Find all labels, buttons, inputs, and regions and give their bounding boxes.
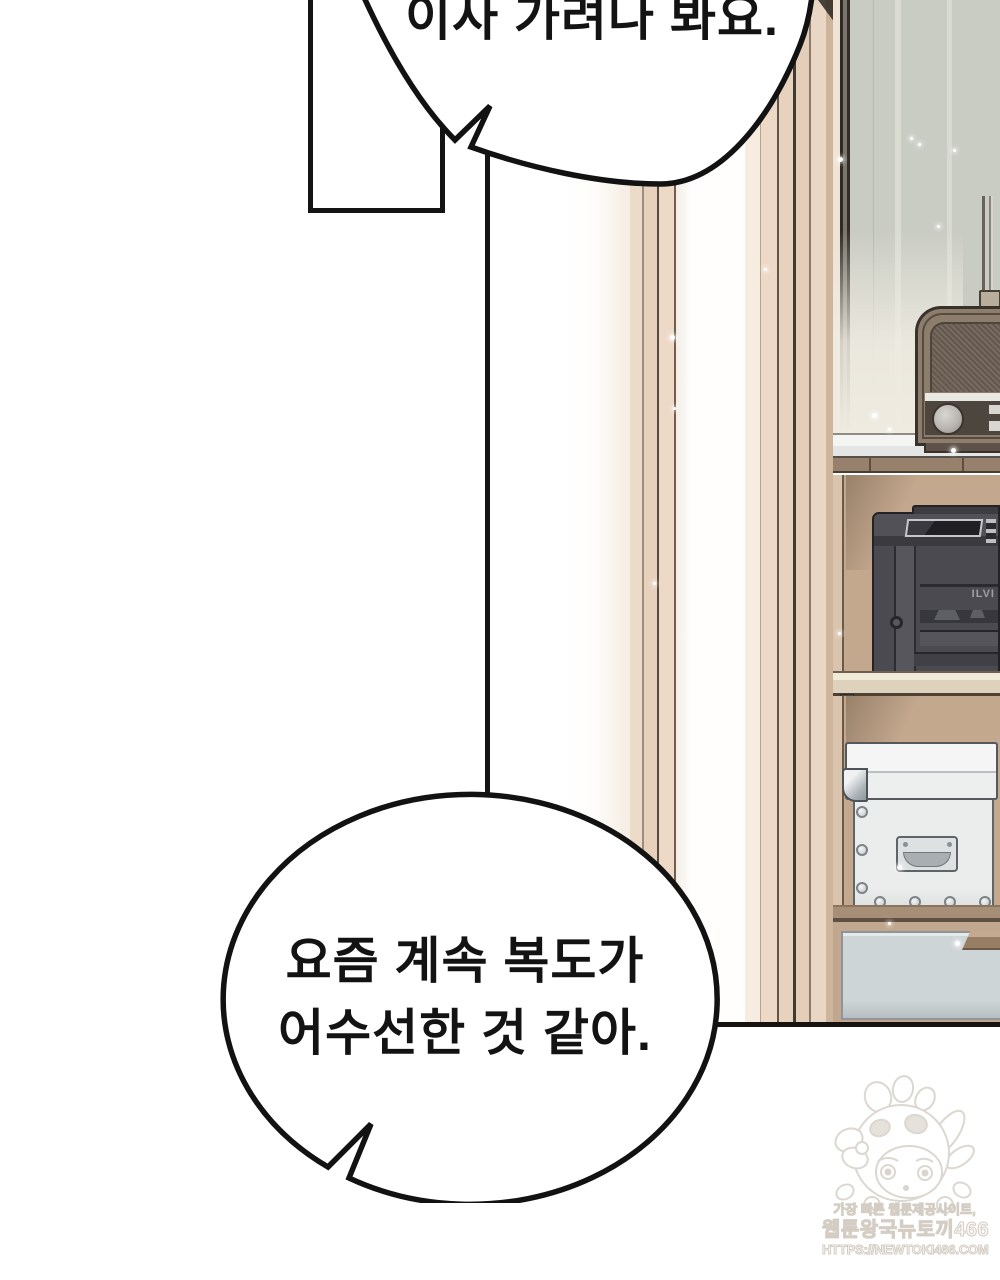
vintage-radio-icon <box>915 306 1000 446</box>
radio-speaker-grille <box>930 322 1000 392</box>
sparkle <box>888 428 891 431</box>
cubby-sidewall <box>833 696 844 922</box>
watermark-mascot-icon <box>810 1075 1000 1215</box>
box-rivet <box>856 844 868 856</box>
sparkle <box>838 632 841 635</box>
drawer-icon <box>833 922 1000 1022</box>
webtoon-page: ILVI <box>0 0 1000 1280</box>
bubble-connector-line <box>485 148 490 803</box>
radio-knob <box>932 403 964 435</box>
sparkle <box>951 448 956 453</box>
printer-paper-slot <box>920 584 998 587</box>
printer-tray-middle <box>920 630 998 646</box>
sparkle <box>888 922 891 925</box>
watermark-site-name: 웹툰왕국뉴토끼466 <box>822 1218 987 1242</box>
shelf-wall-zone: ILVI <box>833 0 1000 1022</box>
speech-line-2: 어수선한 것 같아. <box>240 997 690 1069</box>
sparkle <box>910 137 913 140</box>
watermark-tagline: 가장 빠른 웹툰제공사이트, <box>822 1201 987 1218</box>
speech-bubble-top-text: 이사 가려나 봐요. <box>352 0 832 50</box>
printer-brand-label: ILVI <box>972 588 995 600</box>
sparkle <box>653 582 656 585</box>
speech-bubble-bottom-text: 요즘 계속 복도가 어수선한 것 같아. <box>240 925 690 1069</box>
watermark-url: HTTPS://NEWTOKI466.COM <box>822 1242 987 1258</box>
sparkle <box>764 268 767 271</box>
shelf-board <box>833 905 1000 922</box>
speech-line-1: 요즘 계속 복도가 <box>240 925 690 997</box>
printer-buttons <box>986 519 996 543</box>
sparkle <box>673 407 676 410</box>
radio-base <box>924 443 1000 453</box>
watermark-text: 가장 빠른 웹툰제공사이트, 웹툰왕국뉴토끼466 HTTPS://NEWTOK… <box>822 1201 987 1258</box>
sparkle <box>937 225 940 228</box>
shelf-fascia-board <box>833 458 1000 473</box>
box-rivet <box>856 806 868 818</box>
printer-side-button <box>890 616 903 629</box>
printer-back-lid <box>912 505 1000 514</box>
sparkle <box>955 941 960 946</box>
sparkle <box>918 143 921 146</box>
sparkle <box>897 865 902 870</box>
storage-box-icon <box>845 742 998 912</box>
radio-buttons <box>989 405 1000 431</box>
printer-tray-upper <box>920 610 998 623</box>
printer-side-seam <box>894 546 916 676</box>
printer-icon: ILVI <box>872 512 1000 678</box>
box-metal-corner <box>842 768 868 802</box>
cubby-sidewall <box>833 475 844 671</box>
sparkle <box>872 413 877 418</box>
sparkle <box>670 335 675 340</box>
box-rivet <box>856 882 868 894</box>
sparkle <box>953 149 956 152</box>
printer-display <box>905 519 984 537</box>
radio-trim-strip <box>925 393 1000 401</box>
sparkle <box>838 157 843 162</box>
shelf-board <box>833 671 1000 696</box>
box-handle <box>896 836 958 872</box>
printer-tray-lower <box>914 652 998 666</box>
